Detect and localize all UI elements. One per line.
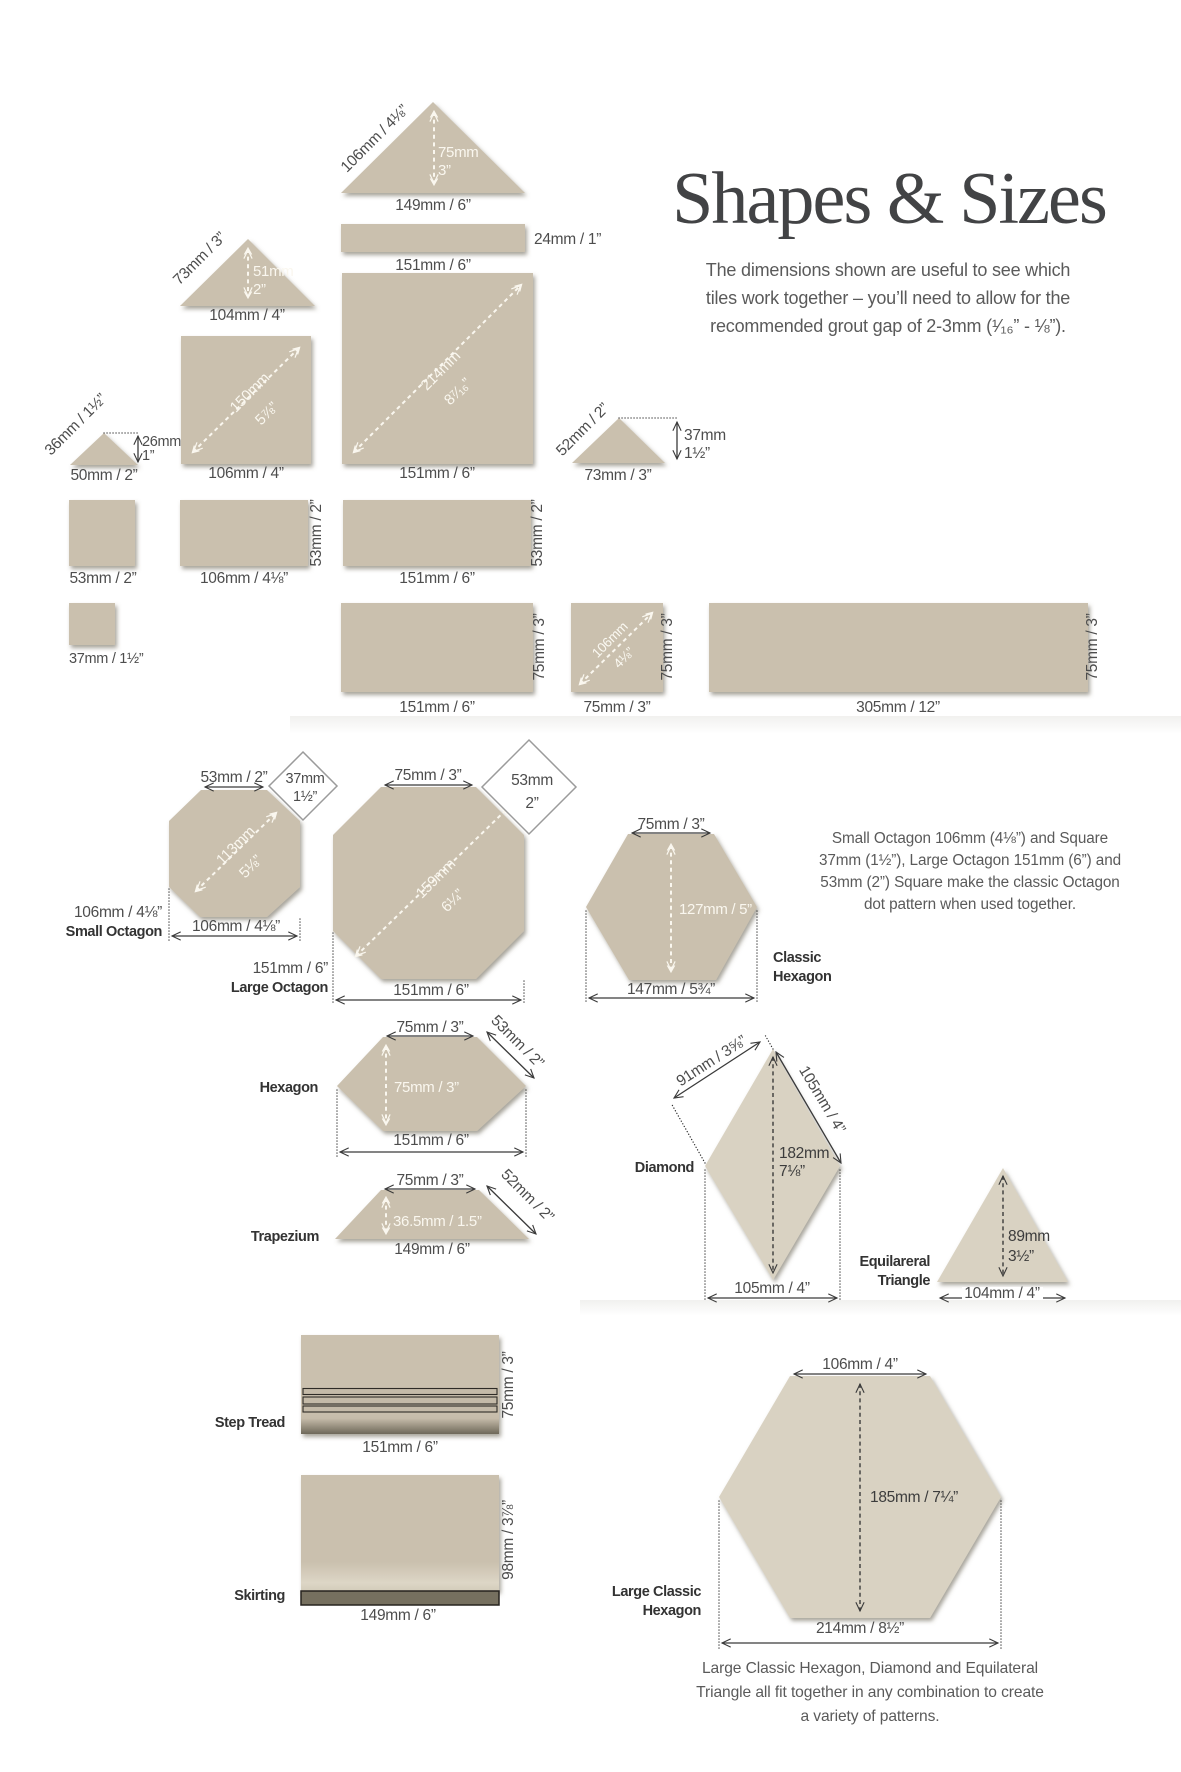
svg-text:147mm / 5¾”: 147mm / 5¾”: [627, 981, 715, 998]
svg-text:106mm / 4⅛”: 106mm / 4⅛”: [192, 918, 280, 935]
svg-text:24mm / 1”: 24mm / 1”: [534, 231, 601, 248]
svg-text:91mm / 3⅝”: 91mm / 3⅝”: [673, 1032, 749, 1090]
svg-text:recommended grout gap of 2-3mm: recommended grout gap of 2-3mm (¹⁄₁₆” - …: [710, 316, 1066, 336]
svg-text:106mm / 4⅛”: 106mm / 4⅛”: [200, 570, 288, 587]
svg-text:75mm / 3”: 75mm / 3”: [637, 816, 704, 833]
svg-text:7⅛”: 7⅛”: [779, 1163, 805, 1180]
svg-text:37mm (1½”), Large Octagon 151m: 37mm (1½”), Large Octagon 151mm (6”) and: [819, 852, 1121, 869]
svg-text:Large Classic: Large Classic: [612, 1584, 701, 1600]
svg-text:214mm / 8½”: 214mm / 8½”: [816, 1620, 904, 1637]
svg-text:Equilareral: Equilareral: [859, 1254, 930, 1270]
svg-text:53mm: 53mm: [511, 772, 553, 789]
svg-text:127mm / 5”: 127mm / 5”: [679, 901, 752, 918]
svg-text:36.5mm / 1.5”: 36.5mm / 1.5”: [393, 1213, 482, 1230]
svg-text:37mm: 37mm: [285, 771, 324, 787]
svg-text:151mm / 6”: 151mm / 6”: [393, 1132, 469, 1149]
svg-text:Hexagon: Hexagon: [260, 1080, 318, 1096]
svg-text:75mm / 3”: 75mm / 3”: [396, 1019, 463, 1036]
svg-text:Triangle all fit together in a: Triangle all fit together in any combina…: [696, 1684, 1044, 1701]
svg-text:149mm / 6”: 149mm / 6”: [395, 197, 471, 214]
svg-text:104mm / 4”: 104mm / 4”: [209, 307, 285, 324]
svg-text:3”: 3”: [438, 162, 451, 179]
svg-text:50mm / 2”: 50mm / 2”: [70, 467, 137, 484]
svg-text:75mm / 3”: 75mm / 3”: [394, 1079, 459, 1096]
svg-text:dot pattern when used together: dot pattern when used together.: [864, 896, 1076, 913]
svg-text:Small Octagon 106mm (4⅛”) and: Small Octagon 106mm (4⅛”) and Square: [832, 830, 1108, 847]
svg-text:1½”: 1½”: [684, 445, 710, 462]
svg-text:53mm / 2”: 53mm / 2”: [529, 499, 546, 566]
svg-text:53mm / 2”: 53mm / 2”: [69, 570, 136, 587]
svg-text:73mm / 3”: 73mm / 3”: [584, 467, 651, 484]
svg-text:2”: 2”: [253, 281, 266, 298]
svg-text:106mm / 4”: 106mm / 4”: [208, 465, 284, 482]
svg-text:75mm / 3”: 75mm / 3”: [583, 699, 650, 716]
svg-text:75mm / 3”: 75mm / 3”: [531, 613, 548, 680]
svg-text:53mm / 2”: 53mm / 2”: [200, 769, 267, 786]
svg-text:182mm: 182mm: [779, 1145, 829, 1162]
svg-text:151mm / 6”: 151mm / 6”: [393, 982, 469, 999]
svg-text:75mm: 75mm: [438, 144, 478, 161]
svg-text:185mm / 7¼”: 185mm / 7¼”: [870, 1489, 958, 1506]
svg-text:a variety of patterns.: a variety of patterns.: [800, 1708, 939, 1725]
svg-text:75mm / 3”: 75mm / 3”: [396, 1172, 463, 1189]
svg-text:149mm / 6”: 149mm / 6”: [394, 1241, 470, 1258]
svg-text:75mm / 3”: 75mm / 3”: [1084, 613, 1101, 680]
svg-text:Small Octagon: Small Octagon: [66, 924, 162, 940]
svg-text:75mm / 3”: 75mm / 3”: [659, 613, 676, 680]
svg-text:Hexagon: Hexagon: [773, 969, 831, 985]
svg-text:106mm / 4⅛”: 106mm / 4⅛”: [74, 904, 162, 921]
svg-text:tiles work together – you’ll n: tiles work together – you’ll need to all…: [706, 288, 1070, 308]
svg-text:98mm / 3⅞”: 98mm / 3⅞”: [500, 1500, 517, 1580]
svg-text:Skirting: Skirting: [234, 1588, 285, 1604]
svg-text:Large Octagon: Large Octagon: [231, 980, 328, 996]
svg-text:104mm / 4”: 104mm / 4”: [964, 1285, 1040, 1302]
svg-text:1½”: 1½”: [293, 789, 318, 805]
svg-text:Large Classic Hexagon, Diamond: Large Classic Hexagon, Diamond and Equil…: [702, 1660, 1038, 1677]
svg-text:151mm / 6”: 151mm / 6”: [399, 570, 475, 587]
svg-text:1”: 1”: [142, 448, 155, 464]
svg-text:37mm / 1½”: 37mm / 1½”: [69, 651, 144, 667]
svg-text:106mm / 4”: 106mm / 4”: [822, 1356, 898, 1373]
svg-text:151mm / 6”: 151mm / 6”: [399, 699, 475, 716]
svg-text:149mm / 6”: 149mm / 6”: [360, 1607, 436, 1624]
svg-text:Trapezium: Trapezium: [251, 1229, 319, 1245]
svg-text:53mm / 2”: 53mm / 2”: [308, 499, 325, 566]
svg-text:75mm / 3”: 75mm / 3”: [394, 767, 461, 784]
svg-text:Step Tread: Step Tread: [215, 1415, 285, 1431]
svg-text:3½”: 3½”: [1008, 1248, 1034, 1265]
svg-text:The dimensions shown are usefu: The dimensions shown are useful to see w…: [706, 260, 1070, 280]
svg-text:Classic: Classic: [773, 950, 821, 966]
svg-text:Hexagon: Hexagon: [643, 1603, 701, 1619]
svg-text:151mm / 6”: 151mm / 6”: [399, 465, 475, 482]
svg-text:151mm / 6”: 151mm / 6”: [253, 960, 329, 977]
svg-text:53mm (2”) Square make the clas: 53mm (2”) Square make the classic Octago…: [820, 874, 1119, 891]
svg-text:305mm / 12”: 305mm / 12”: [856, 699, 940, 716]
svg-text:Triangle: Triangle: [878, 1273, 931, 1289]
svg-text:Shapes & Sizes: Shapes & Sizes: [672, 158, 1106, 240]
svg-text:51mm: 51mm: [253, 263, 293, 280]
svg-text:151mm / 6”: 151mm / 6”: [362, 1439, 438, 1456]
svg-text:2”: 2”: [525, 795, 538, 812]
svg-text:89mm: 89mm: [1008, 1228, 1050, 1245]
svg-text:37mm: 37mm: [684, 427, 726, 444]
svg-text:52mm / 2”: 52mm / 2”: [497, 1166, 557, 1226]
svg-text:105mm / 4”: 105mm / 4”: [734, 1280, 810, 1297]
svg-text:151mm / 6”: 151mm / 6”: [395, 257, 471, 274]
svg-text:75mm / 3”: 75mm / 3”: [500, 1351, 517, 1418]
svg-text:Diamond: Diamond: [635, 1160, 694, 1176]
